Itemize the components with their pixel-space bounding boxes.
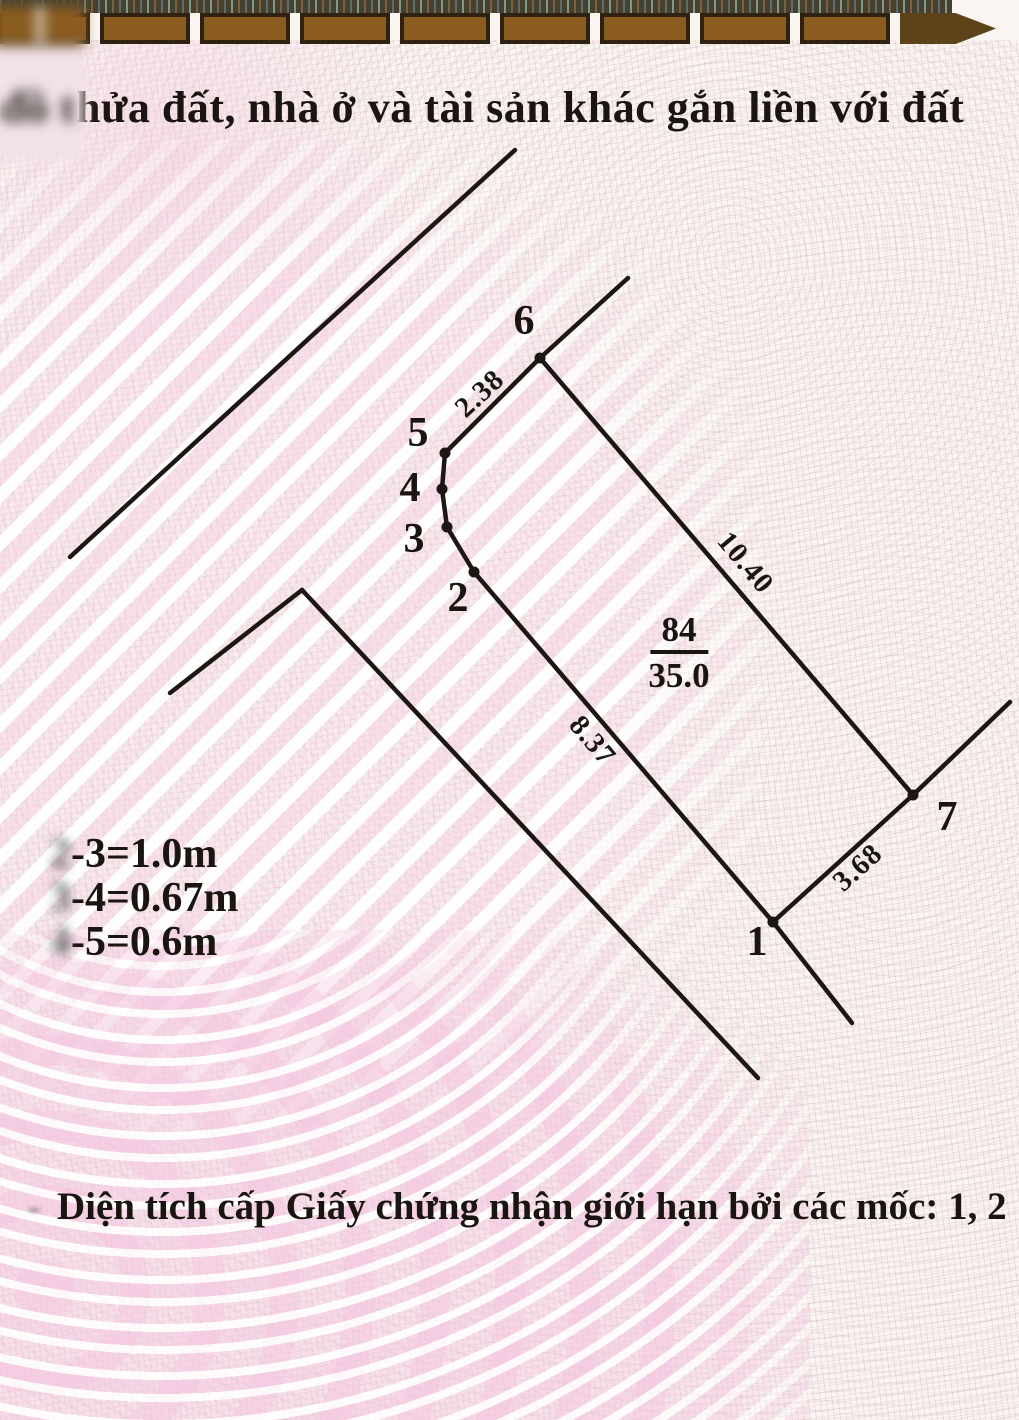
bottom-note: -Diện tích cấp Giấy chứng nhận giới hạn … — [28, 1184, 1007, 1229]
top-tick-strip — [0, 0, 952, 13]
boundary-line — [442, 489, 447, 527]
blurred-border-fragment — [0, 0, 84, 46]
boundary-line — [913, 702, 1010, 795]
border-block — [400, 13, 490, 44]
blurred-title-fragment: đồ t — [0, 80, 75, 133]
boundary-line — [540, 358, 913, 795]
vertex-dot — [535, 353, 546, 364]
vertex-dot — [440, 448, 451, 459]
boundary-line — [447, 527, 474, 572]
segment-note-text: -4=0.67m — [71, 875, 238, 921]
vertex-dot — [469, 567, 480, 578]
segment-notes: 2-3=1.0m3-4=0.67m4-5=0.6m — [50, 832, 238, 964]
border-block — [600, 13, 690, 44]
segment-note-text: -3=1.0m — [71, 831, 217, 877]
scanned-land-certificate: hửa đất, nhà ở và tài sản khác gắn liền … — [0, 0, 1019, 1420]
boundary-line — [474, 572, 773, 922]
blurred-paper-fragment: đồ t — [0, 46, 84, 160]
segment-note-line: 2-3=1.0m — [50, 832, 238, 876]
vertex-dot — [768, 917, 779, 928]
boundary-line — [445, 358, 540, 453]
boundary-line — [773, 922, 852, 1023]
segment-note-text: -5=0.6m — [71, 919, 217, 965]
bottom-note-dash: - — [28, 1185, 41, 1228]
border-block — [700, 13, 790, 44]
photo-top-border — [0, 0, 1019, 46]
boundary-line — [773, 795, 913, 922]
boundary-line — [540, 278, 628, 358]
segment-note-line: 3-4=0.67m — [50, 876, 238, 920]
parcel-number: 84 — [648, 612, 709, 647]
blurred-region: đồ t — [0, 0, 84, 160]
brown-block-row — [0, 13, 1019, 44]
border-block — [500, 13, 590, 44]
page-title-text: hửa đất, nhà ở và tài sản khác gắn liền … — [76, 83, 964, 132]
border-block — [800, 13, 890, 44]
vertex-dot — [437, 484, 448, 495]
boundary-line — [170, 590, 302, 693]
parcel-area: 35.0 — [648, 658, 709, 693]
vertex-dot — [908, 790, 919, 801]
page-title: hửa đất, nhà ở và tài sản khác gắn liền … — [76, 82, 964, 133]
parcel-label: 84 35.0 — [648, 612, 709, 693]
blurred-digit: 2 — [50, 831, 71, 877]
boundary-line — [70, 150, 515, 557]
vertex-dot — [442, 522, 453, 533]
fraction-bar — [650, 650, 708, 654]
blurred-digit: 4 — [50, 919, 71, 965]
blurred-digit: 3 — [50, 875, 71, 921]
segment-note-line: 4-5=0.6m — [50, 920, 238, 964]
bottom-note-text: Diện tích cấp Giấy chứng nhận giới hạn b… — [57, 1185, 1007, 1228]
border-block — [200, 13, 290, 44]
border-block-taper — [900, 13, 996, 44]
border-block — [300, 13, 390, 44]
border-block — [100, 13, 190, 44]
